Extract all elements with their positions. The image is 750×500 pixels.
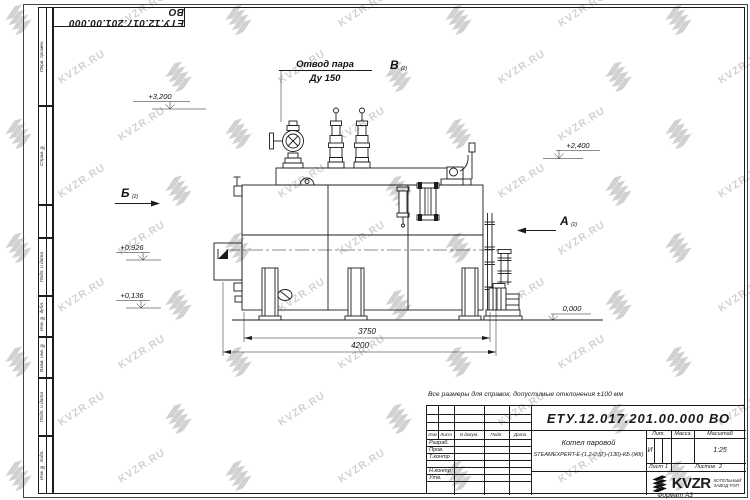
frame-column-inv-dubl: Инв. № дубл. <box>38 296 53 337</box>
sheets-cell: Листов 2 <box>671 463 746 471</box>
scale-label: Масштаб <box>694 430 746 438</box>
company-name: KVZR <box>672 475 711 492</box>
product-model: STEAMEXPERT-E-(1,2-0,5Г)-(130)-КБ (ЖК) <box>531 448 646 462</box>
doc-number: ЕТУ.12.017.201.00.000 ВО <box>531 406 746 430</box>
mass-label: Масса <box>671 430 694 438</box>
frame-column-inv-podl: Инв. № подл. <box>38 436 53 494</box>
frame-column-blank <box>38 205 53 238</box>
frame-column-sprav: Справ. № <box>38 106 53 205</box>
row-utv: Утв. <box>427 474 456 481</box>
title-block: ЕТУ.12.017.201.00.000 ВО Изм Лист N доку… <box>426 405 745 494</box>
col-izm: Изм <box>427 430 438 439</box>
sheet-cell: Лист 1 <box>646 463 671 471</box>
doc-number-flipped: ЕТУ.12.017.201.00.000 ВО <box>54 6 184 28</box>
lit-value: И <box>646 438 654 463</box>
row-nkontr: Н.контр <box>427 467 456 474</box>
kvzr-logo-icon <box>651 474 669 492</box>
frame-column-vzam-inv: Взам. инв. № <box>38 337 53 378</box>
col-list: Лист <box>438 430 454 439</box>
drawing-sheet: KVZR.RUKVZR.RUKVZR.RUKVZR.RUKVZR.RUKVZR.… <box>0 0 750 500</box>
col-podp: Подп. <box>484 430 509 439</box>
company-subtitle: КОТЕЛЬНЫЙ ЗАВОД РЭП <box>714 478 742 488</box>
scale-value: 1:25 <box>694 438 746 463</box>
row-prov: Пров. <box>427 446 456 453</box>
col-ndokum: N докум. <box>454 430 484 439</box>
frame-column-perv-primen: Перв. примен. <box>38 7 53 106</box>
frame-column-podp-data-1: Подп. и дата <box>38 238 53 296</box>
doc-number-flipped-box: ЕТУ.12.017.201.00.000 ВО <box>53 7 185 27</box>
tolerance-note: Все размеры для справок, допустимые откл… <box>428 391 623 398</box>
lit-label: Лит. <box>646 430 671 438</box>
frame-column-podp-data-2: Подп. и дата <box>38 378 53 436</box>
format-label: Формат А3 <box>630 492 720 499</box>
row-tkontr: Т.контр <box>427 453 456 460</box>
col-data: Дата <box>509 430 531 439</box>
row-razrab: Разраб. <box>427 439 456 446</box>
